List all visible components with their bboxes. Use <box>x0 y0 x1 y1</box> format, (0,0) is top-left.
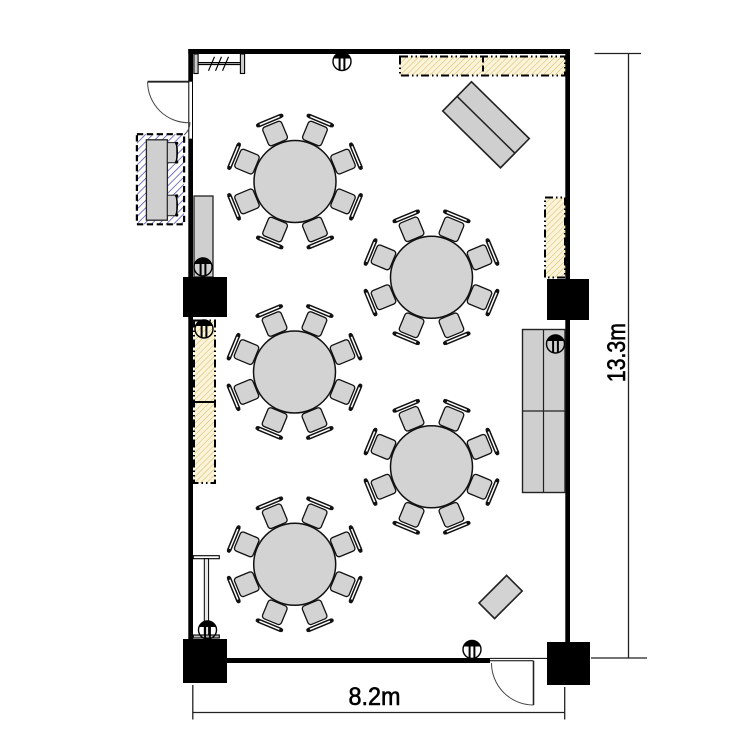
svg-text:13.3m: 13.3m <box>603 323 631 382</box>
svg-text:8.2m: 8.2m <box>349 683 401 711</box>
